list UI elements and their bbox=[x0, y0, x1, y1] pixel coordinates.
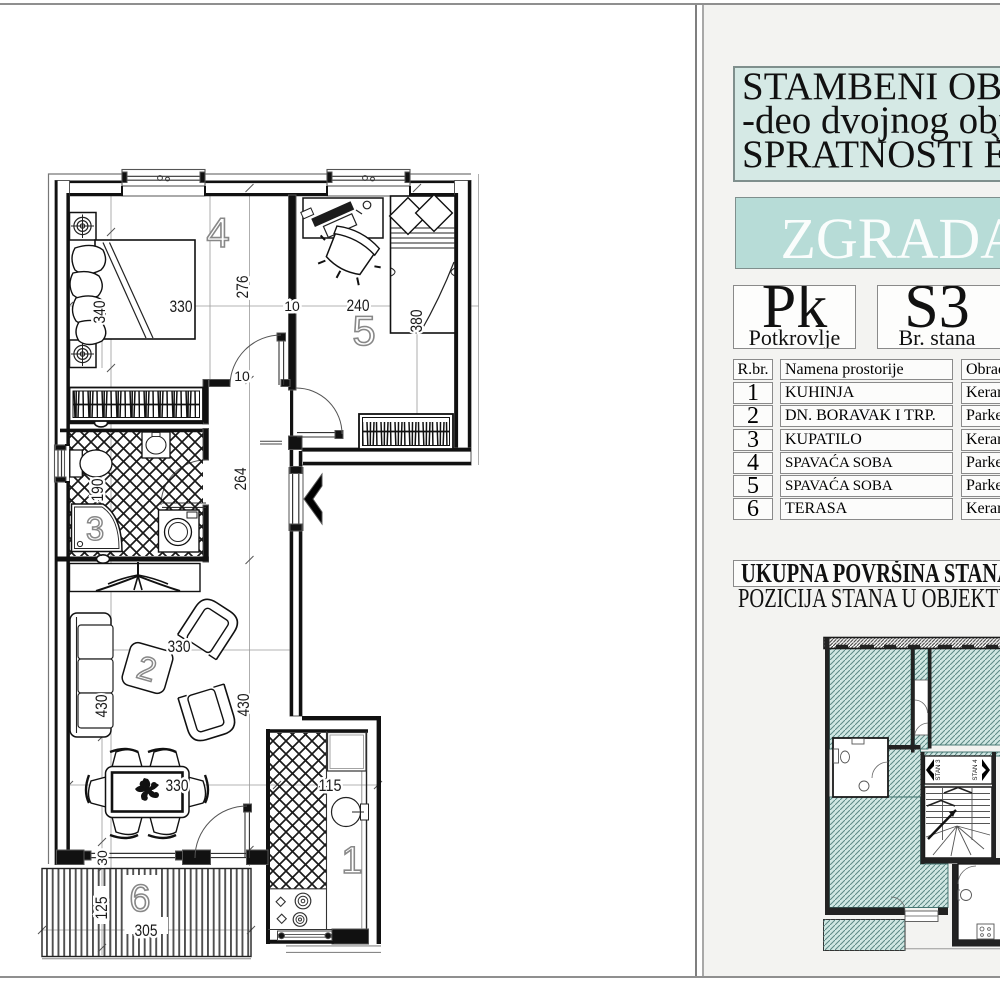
svg-text:430: 430 bbox=[234, 694, 253, 717]
svg-text:125: 125 bbox=[92, 897, 111, 920]
svg-text:330: 330 bbox=[168, 637, 191, 656]
svg-text:330: 330 bbox=[170, 297, 193, 316]
svg-text:4: 4 bbox=[206, 209, 229, 256]
svg-text:3: 3 bbox=[86, 510, 104, 547]
svg-text:330: 330 bbox=[166, 776, 189, 795]
svg-text:1: 1 bbox=[341, 840, 362, 882]
svg-text:276: 276 bbox=[233, 276, 252, 299]
svg-text:6: 6 bbox=[129, 878, 150, 920]
svg-text:380: 380 bbox=[407, 310, 426, 333]
svg-text:30: 30 bbox=[94, 850, 110, 866]
svg-text:430: 430 bbox=[92, 695, 111, 718]
svg-text:115: 115 bbox=[319, 776, 342, 795]
svg-text:240: 240 bbox=[347, 296, 370, 315]
svg-text:STAN 3: STAN 3 bbox=[935, 759, 942, 781]
svg-text:305: 305 bbox=[135, 921, 158, 940]
svg-text:10: 10 bbox=[234, 368, 250, 384]
svg-text:STAN 4: STAN 4 bbox=[972, 759, 979, 781]
svg-text:10: 10 bbox=[284, 298, 300, 314]
svg-text:340: 340 bbox=[90, 301, 109, 324]
svg-text:264: 264 bbox=[231, 468, 250, 491]
svg-text:190: 190 bbox=[88, 479, 107, 502]
